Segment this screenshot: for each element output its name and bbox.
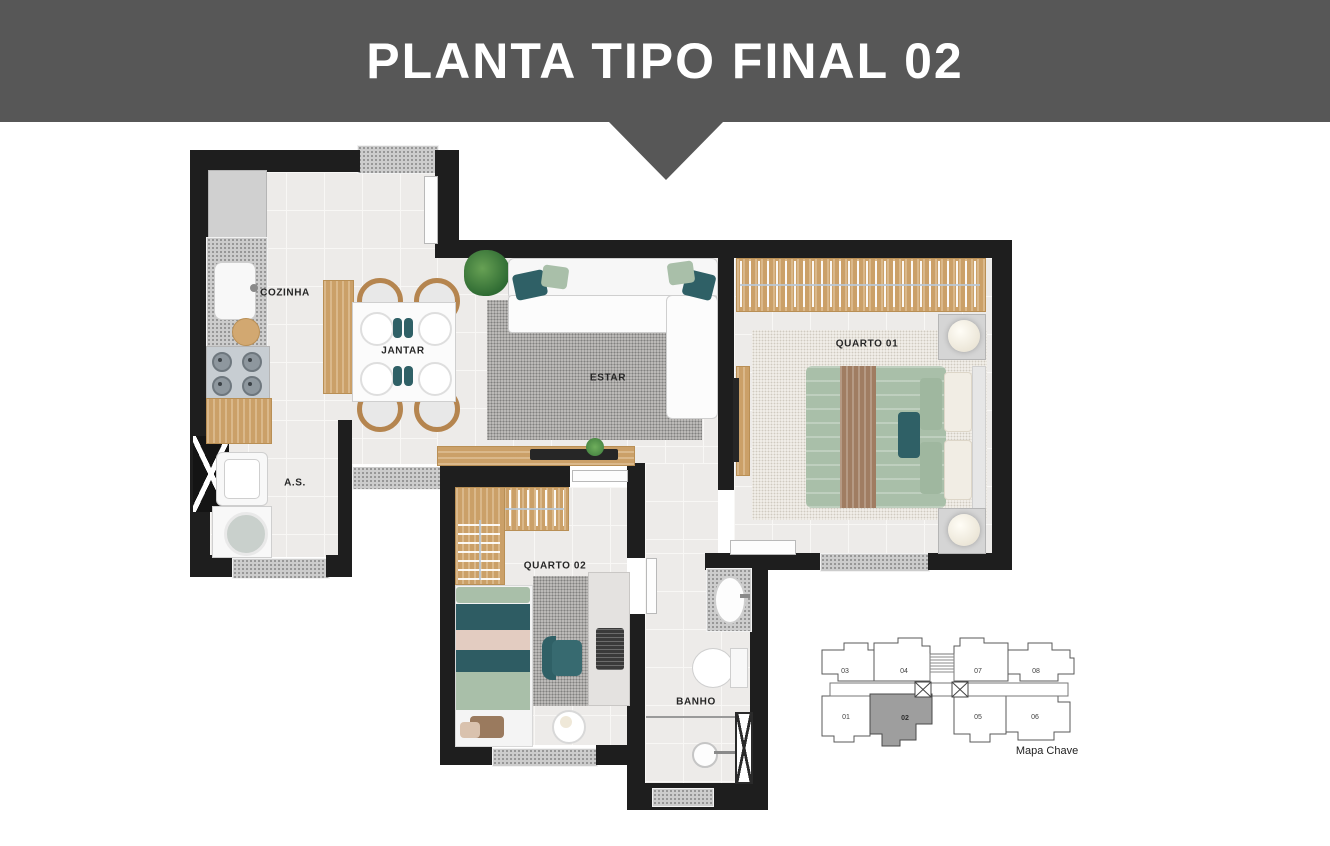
toilet-bowl — [692, 648, 734, 688]
plate — [418, 312, 452, 346]
stove-burner — [242, 352, 262, 372]
small-plant — [586, 438, 604, 456]
room-label-as: A.S. — [284, 478, 306, 489]
single-bed-blanket-teal — [456, 604, 530, 630]
wall-kitchen-top — [190, 150, 360, 172]
wall-living-bedroom1 — [718, 258, 734, 490]
toilet-tank — [730, 648, 748, 688]
keymap-label-04: 04 — [900, 668, 908, 675]
bed-pillow-sage — [920, 378, 942, 430]
key-map: 03 04 07 08 01 02 05 06 Mapa Chave — [818, 636, 1080, 762]
hall-sill — [352, 464, 442, 490]
bathroom-window-sill — [652, 788, 714, 807]
bedroom2-window — [492, 748, 598, 767]
bathroom-faucet — [740, 594, 750, 598]
keymap-label-02: 02 — [901, 715, 909, 722]
floor-hall — [645, 463, 718, 553]
keymap-unit-03 — [822, 643, 874, 681]
room-label-banho: BANHO — [676, 697, 716, 708]
floor-plan-page: COZINHA JANTAR ESTAR QUARTO 01 A.S. QUAR… — [0, 0, 1330, 846]
plate — [360, 312, 394, 346]
napkin — [404, 366, 413, 386]
plate — [360, 362, 394, 396]
lamp — [948, 514, 980, 546]
side-table-flower — [560, 716, 572, 728]
entry-door — [424, 176, 438, 244]
single-bed-blanket-pink — [456, 630, 530, 650]
stove-burner — [212, 352, 232, 372]
washer-door — [224, 512, 268, 556]
wall-top — [458, 240, 1012, 258]
lamp — [948, 320, 980, 352]
laundry-tub-basin — [224, 459, 260, 499]
bedroom2-wardrobe-hangers-side — [458, 520, 500, 580]
shower-head — [692, 742, 718, 768]
keymap-caption: Mapa Chave — [1016, 745, 1078, 757]
wall-laundry-right — [338, 420, 352, 577]
kitchen-wood-counter — [206, 398, 272, 444]
page-title: PLANTA TIPO FINAL 02 — [0, 0, 1330, 122]
bed-pillow-teal — [898, 412, 920, 458]
tv — [530, 449, 618, 460]
single-bed-blanket-teal2 — [456, 650, 530, 672]
wall-entry-column — [435, 150, 459, 258]
bed-cushion-beige — [460, 722, 480, 738]
single-bed-pillow — [456, 587, 530, 603]
room-label-estar: ESTAR — [590, 373, 626, 384]
cutting-board — [232, 318, 260, 346]
napkin — [404, 318, 413, 338]
bedroom1-window — [820, 553, 930, 572]
title-banner: PLANTA TIPO FINAL 02 — [0, 0, 1330, 122]
bed-pillow — [944, 440, 972, 500]
room-label-cozinha: COZINHA — [260, 288, 310, 299]
keymap-label-03: 03 — [841, 668, 849, 675]
napkin — [393, 366, 402, 386]
bedroom1-wardrobe-hangers — [740, 261, 980, 307]
banner-pointer-icon — [609, 122, 723, 180]
fridge — [208, 170, 267, 238]
sofa-pillow-sage — [667, 260, 696, 285]
single-bed-duvet — [456, 672, 530, 710]
wall-bedroom2-bottom-left — [440, 745, 492, 765]
napkin — [393, 318, 402, 338]
keymap-label-05: 05 — [974, 714, 982, 721]
bed-pillow — [944, 372, 972, 432]
stove-burner — [212, 376, 232, 396]
kitchen-faucet — [250, 284, 258, 292]
bathroom-door — [646, 558, 657, 614]
entry-threshold — [357, 145, 439, 174]
bedroom1-tv — [733, 378, 739, 462]
bed-pillow-sage — [920, 442, 942, 494]
keymap-label-07: 07 — [974, 668, 982, 675]
bedroom2-wardrobe-hangers — [500, 490, 564, 526]
wall-bedroom2-bathroom — [627, 463, 645, 558]
room-label-quarto2: QUARTO 02 — [524, 561, 586, 572]
bedroom2-door — [572, 470, 628, 482]
bathroom-sink — [714, 576, 746, 624]
stove-burner — [242, 376, 262, 396]
sofa-chaise — [666, 295, 718, 419]
keymap-label-06: 06 — [1031, 714, 1039, 721]
room-label-jantar: JANTAR — [381, 346, 424, 357]
keymap-label-08: 08 — [1032, 668, 1040, 675]
desk-chair-seat — [552, 640, 582, 676]
wall-right — [992, 240, 1012, 570]
wall-bedroom2-top — [440, 463, 570, 487]
shower-screen — [735, 712, 753, 784]
bedroom1-door — [730, 540, 796, 555]
wall-bedroom2-bottom-right — [596, 745, 627, 765]
keymap-corridor — [830, 683, 1068, 696]
bed-headboard — [972, 366, 986, 510]
keymap-label-01: 01 — [842, 714, 850, 721]
room-label-quarto1: QUARTO 01 — [836, 339, 898, 350]
keymap-unit-08 — [1008, 643, 1074, 681]
kitchen-sink — [214, 262, 256, 320]
laptop — [596, 628, 624, 670]
plate — [418, 362, 452, 396]
laundry-window — [232, 558, 330, 579]
dining-bar-counter — [323, 280, 354, 394]
bed-runner — [840, 366, 876, 508]
sofa-pillow-sage — [541, 264, 570, 289]
wall-laundry-bottom-left — [190, 555, 232, 577]
